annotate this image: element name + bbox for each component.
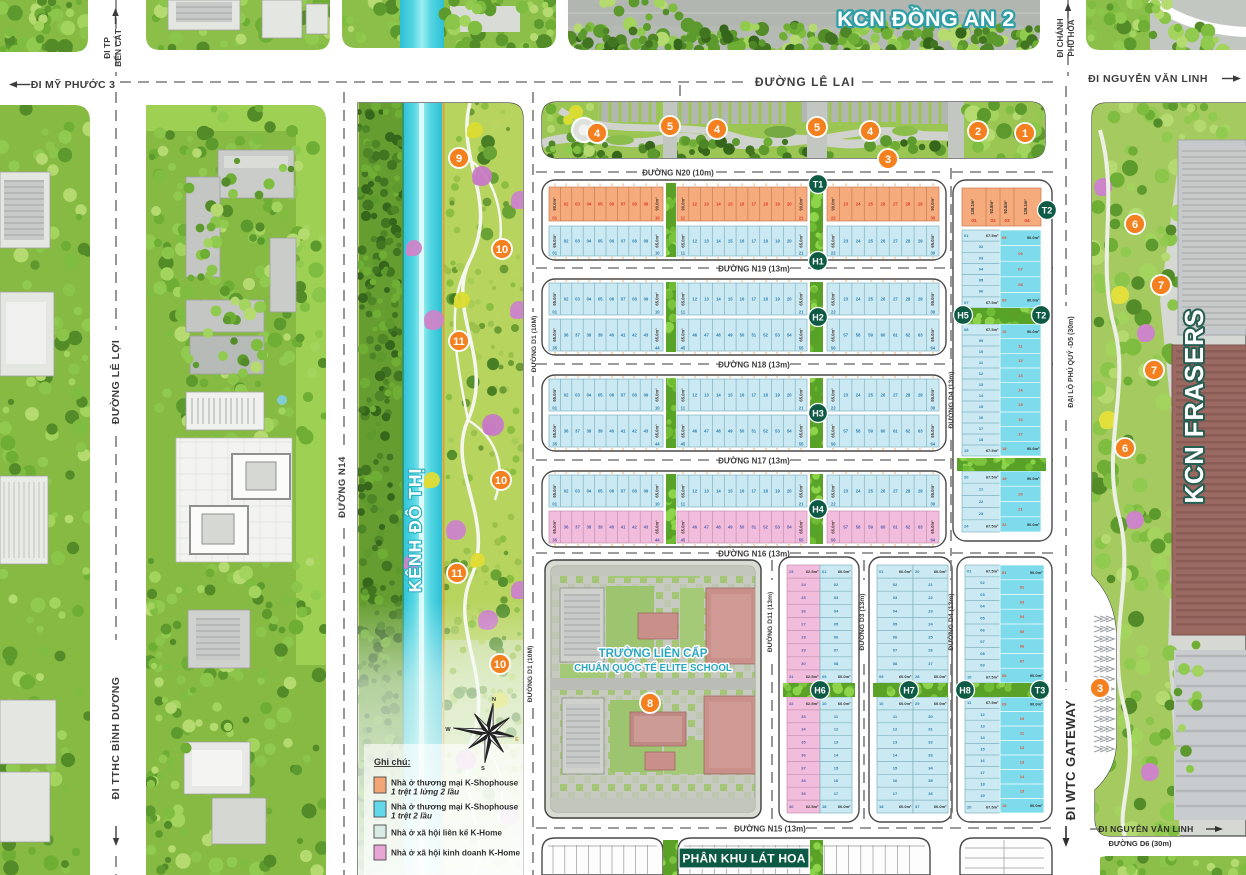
svg-text:90.0m²: 90.0m² — [1027, 329, 1040, 334]
svg-text:5: 5 — [765, 544, 767, 548]
svg-text:25: 25 — [868, 393, 873, 398]
svg-text:12: 12 — [692, 297, 697, 302]
svg-text:61: 61 — [893, 333, 898, 338]
svg-text:90.0m²: 90.0m² — [1030, 673, 1043, 678]
svg-text:2: 2 — [975, 126, 981, 138]
svg-text:5: 5 — [894, 257, 896, 261]
svg-text:5: 5 — [588, 257, 590, 261]
svg-text:09: 09 — [644, 239, 649, 244]
svg-text:5: 5 — [932, 471, 934, 475]
svg-text:ĐI CHÁNH: ĐI CHÁNH — [1056, 18, 1065, 57]
svg-text:39: 39 — [598, 429, 603, 434]
svg-text:58: 58 — [856, 429, 861, 434]
svg-text:07: 07 — [621, 297, 626, 302]
svg-text:03: 03 — [575, 239, 580, 244]
svg-text:48: 48 — [716, 333, 721, 338]
svg-text:12: 12 — [692, 393, 697, 398]
svg-text:5: 5 — [717, 471, 719, 475]
svg-text:62.5m²: 62.5m² — [806, 569, 819, 574]
svg-text:53: 53 — [775, 525, 780, 530]
svg-text:07: 07 — [834, 648, 839, 653]
svg-text:5: 5 — [800, 448, 802, 452]
svg-text:9: 9 — [456, 153, 462, 165]
svg-text:65.0m²: 65.0m² — [799, 292, 804, 306]
svg-text:5: 5 — [776, 257, 778, 261]
svg-text:04: 04 — [1024, 218, 1030, 224]
svg-text:06: 06 — [1020, 644, 1025, 649]
svg-text:5: 5 — [633, 544, 635, 548]
svg-text:60.0m²: 60.0m² — [934, 804, 947, 809]
svg-text:5: 5 — [814, 122, 820, 134]
svg-text:5: 5 — [832, 257, 834, 261]
svg-text:5: 5 — [894, 448, 896, 452]
svg-text:65.0m²: 65.0m² — [930, 484, 935, 498]
svg-text:5: 5 — [729, 448, 731, 452]
svg-text:5: 5 — [611, 279, 613, 283]
svg-text:5: 5 — [857, 448, 859, 452]
svg-text:18: 18 — [1002, 446, 1007, 451]
svg-text:5: 5 — [656, 183, 658, 187]
svg-text:17: 17 — [979, 426, 984, 431]
svg-text:12: 12 — [893, 727, 898, 732]
svg-text:65.0m²: 65.0m² — [799, 424, 804, 438]
svg-text:5: 5 — [611, 544, 613, 548]
svg-text:92.8m²: 92.8m² — [989, 200, 994, 214]
svg-text:5: 5 — [870, 279, 872, 283]
svg-text:5: 5 — [845, 471, 847, 475]
svg-text:5: 5 — [682, 257, 684, 261]
svg-text:03: 03 — [575, 489, 580, 494]
svg-text:45: 45 — [681, 346, 686, 351]
svg-text:10: 10 — [822, 701, 827, 706]
svg-text:65.0m²: 65.0m² — [831, 328, 836, 342]
svg-text:5: 5 — [765, 257, 767, 261]
svg-text:20: 20 — [967, 805, 972, 810]
svg-text:09: 09 — [644, 202, 649, 207]
svg-text:65.0m²: 65.0m² — [655, 234, 660, 248]
svg-text:5: 5 — [907, 471, 909, 475]
svg-text:22: 22 — [831, 216, 836, 221]
svg-text:33: 33 — [801, 714, 806, 719]
svg-text:H6: H6 — [814, 686, 826, 696]
svg-text:46: 46 — [692, 333, 697, 338]
svg-text:10: 10 — [1002, 329, 1007, 334]
svg-text:38: 38 — [587, 333, 592, 338]
svg-text:5: 5 — [932, 183, 934, 187]
svg-text:S: S — [481, 766, 485, 772]
svg-text:5: 5 — [682, 183, 684, 187]
svg-text:67.5m²: 67.5m² — [986, 448, 999, 453]
svg-text:34: 34 — [801, 727, 806, 732]
svg-text:60.0m²: 60.0m² — [899, 804, 912, 809]
svg-text:5: 5 — [765, 448, 767, 452]
svg-text:02: 02 — [893, 582, 898, 587]
svg-text:29: 29 — [915, 701, 920, 706]
svg-text:10: 10 — [967, 675, 972, 680]
svg-text:67.5m²: 67.5m² — [986, 805, 999, 810]
svg-text:24: 24 — [856, 489, 861, 494]
svg-text:24: 24 — [928, 621, 933, 626]
svg-text:27: 27 — [928, 661, 933, 666]
svg-text:5: 5 — [588, 375, 590, 379]
svg-text:32: 32 — [928, 740, 933, 745]
svg-text:01: 01 — [1002, 570, 1007, 575]
svg-text:ĐƯỜNG N15 (13m): ĐƯỜNG N15 (13m) — [734, 825, 806, 834]
svg-text:5: 5 — [611, 183, 613, 187]
svg-text:50: 50 — [740, 333, 745, 338]
svg-text:5: 5 — [706, 257, 708, 261]
svg-text:5: 5 — [907, 448, 909, 452]
svg-text:65.0m²: 65.0m² — [680, 328, 685, 342]
svg-text:5: 5 — [776, 471, 778, 475]
svg-text:15: 15 — [728, 489, 733, 494]
svg-text:17: 17 — [751, 297, 756, 302]
svg-text:47: 47 — [704, 525, 709, 530]
svg-text:5: 5 — [645, 183, 647, 187]
svg-text:02: 02 — [564, 239, 569, 244]
svg-text:4: 4 — [594, 128, 601, 140]
svg-text:54: 54 — [787, 429, 792, 434]
svg-text:64: 64 — [930, 538, 935, 543]
svg-text:12: 12 — [834, 727, 839, 732]
svg-text:ĐƯỜNG D1 (10M): ĐƯỜNG D1 (10M) — [525, 646, 534, 703]
svg-text:5: 5 — [741, 352, 743, 356]
svg-text:5: 5 — [694, 448, 696, 452]
svg-text:ĐI NGUYỄN VĂN LINH: ĐI NGUYỄN VĂN LINH — [1098, 823, 1193, 834]
svg-text:25: 25 — [868, 489, 873, 494]
svg-text:40: 40 — [609, 333, 614, 338]
svg-text:Ghi chú:: Ghi chú: — [374, 757, 411, 767]
svg-text:27: 27 — [801, 621, 806, 626]
svg-text:03: 03 — [1020, 599, 1025, 604]
svg-text:5: 5 — [682, 471, 684, 475]
svg-text:40: 40 — [789, 804, 794, 809]
svg-text:5: 5 — [588, 448, 590, 452]
svg-text:67.5m²: 67.5m² — [986, 327, 999, 332]
svg-text:4: 4 — [714, 124, 721, 136]
svg-text:38: 38 — [587, 525, 592, 530]
svg-text:07: 07 — [980, 639, 985, 644]
svg-text:5: 5 — [611, 471, 613, 475]
svg-text:33: 33 — [928, 752, 933, 757]
svg-text:13: 13 — [704, 202, 709, 207]
svg-text:10: 10 — [494, 659, 506, 671]
svg-text:60.0m²: 60.0m² — [899, 569, 912, 574]
svg-text:27: 27 — [893, 202, 898, 207]
svg-text:18: 18 — [763, 393, 768, 398]
svg-text:5: 5 — [611, 448, 613, 452]
svg-text:03: 03 — [1004, 218, 1010, 224]
svg-text:ĐƯỜNG D11 (13m): ĐƯỜNG D11 (13m) — [765, 592, 774, 653]
svg-text:31: 31 — [789, 674, 794, 679]
svg-text:5: 5 — [857, 183, 859, 187]
svg-text:5: 5 — [870, 352, 872, 356]
svg-text:5: 5 — [588, 279, 590, 283]
svg-text:5: 5 — [565, 257, 567, 261]
svg-text:39: 39 — [598, 525, 603, 530]
svg-text:65.0m²: 65.0m² — [930, 328, 935, 342]
svg-text:56: 56 — [831, 346, 836, 351]
svg-text:60.0m²: 60.0m² — [838, 701, 851, 706]
svg-text:18: 18 — [879, 804, 884, 809]
svg-text:50: 50 — [740, 429, 745, 434]
svg-text:52: 52 — [763, 525, 768, 530]
svg-text:E: E — [515, 737, 519, 743]
svg-text:ĐƯỜNG LÊ LỢI: ĐƯỜNG LÊ LỢI — [109, 340, 122, 425]
svg-text:65.0m²: 65.0m² — [831, 424, 836, 438]
svg-text:H3: H3 — [812, 409, 824, 419]
svg-text:26: 26 — [881, 489, 886, 494]
svg-text:49: 49 — [728, 333, 733, 338]
svg-text:7: 7 — [1158, 280, 1164, 292]
svg-text:01: 01 — [552, 502, 557, 507]
svg-text:25: 25 — [868, 202, 873, 207]
svg-text:5: 5 — [741, 471, 743, 475]
svg-text:H2: H2 — [812, 313, 824, 323]
svg-text:5: 5 — [622, 257, 624, 261]
svg-text:65.0m²: 65.0m² — [930, 292, 935, 306]
svg-text:12: 12 — [692, 239, 697, 244]
svg-text:16: 16 — [740, 297, 745, 302]
svg-text:14: 14 — [893, 752, 898, 757]
svg-text:49: 49 — [728, 429, 733, 434]
svg-text:5: 5 — [832, 544, 834, 548]
svg-text:09: 09 — [644, 489, 649, 494]
svg-text:06: 06 — [1018, 251, 1023, 256]
svg-text:5: 5 — [857, 257, 859, 261]
svg-text:5: 5 — [788, 448, 790, 452]
svg-text:5: 5 — [894, 279, 896, 283]
svg-text:67.5m²: 67.5m² — [986, 568, 999, 573]
svg-text:10: 10 — [655, 216, 660, 221]
svg-text:57: 57 — [843, 333, 848, 338]
svg-text:ĐI TTHC BÌNH DƯƠNG: ĐI TTHC BÌNH DƯƠNG — [109, 677, 122, 800]
svg-text:ĐƯỜNG D6 (30m): ĐƯỜNG D6 (30m) — [1108, 839, 1172, 848]
svg-text:60.0m²: 60.0m² — [838, 674, 851, 679]
svg-text:T1: T1 — [813, 180, 824, 190]
svg-text:5: 5 — [882, 257, 884, 261]
svg-text:25: 25 — [868, 297, 873, 302]
svg-text:5: 5 — [882, 544, 884, 548]
svg-text:02: 02 — [834, 582, 839, 587]
svg-text:16: 16 — [740, 202, 745, 207]
svg-text:67.5m²: 67.5m² — [986, 233, 999, 238]
svg-text:16: 16 — [740, 489, 745, 494]
svg-text:17: 17 — [751, 489, 756, 494]
svg-text:5: 5 — [845, 183, 847, 187]
svg-text:43: 43 — [644, 429, 649, 434]
svg-text:02: 02 — [980, 580, 985, 585]
svg-text:17: 17 — [893, 791, 898, 796]
svg-text:62.5m²: 62.5m² — [806, 674, 819, 679]
svg-text:53: 53 — [775, 333, 780, 338]
svg-text:5: 5 — [599, 448, 601, 452]
svg-text:29: 29 — [918, 202, 923, 207]
svg-text:90.0m²: 90.0m² — [1027, 446, 1040, 451]
svg-text:30: 30 — [930, 502, 935, 507]
svg-text:04: 04 — [587, 239, 592, 244]
svg-text:ĐƯỜNG D4 (13m): ĐƯỜNG D4 (13m) — [946, 593, 955, 650]
svg-text:5: 5 — [565, 544, 567, 548]
svg-text:5: 5 — [870, 544, 872, 548]
svg-text:35: 35 — [801, 740, 806, 745]
svg-text:65.0m²: 65.0m² — [831, 484, 836, 498]
svg-text:26: 26 — [801, 608, 806, 613]
svg-text:17: 17 — [1018, 431, 1023, 436]
svg-text:65.0m²: 65.0m² — [552, 234, 557, 248]
svg-text:05: 05 — [598, 393, 603, 398]
svg-text:5: 5 — [882, 183, 884, 187]
svg-text:01: 01 — [552, 310, 557, 315]
svg-text:07: 07 — [1018, 266, 1023, 271]
svg-text:13: 13 — [1018, 373, 1023, 378]
svg-text:5: 5 — [845, 448, 847, 452]
svg-text:5: 5 — [832, 352, 834, 356]
svg-text:03: 03 — [575, 202, 580, 207]
svg-text:11: 11 — [453, 336, 465, 348]
svg-text:5: 5 — [633, 183, 635, 187]
svg-text:5: 5 — [554, 352, 556, 356]
svg-text:5: 5 — [694, 279, 696, 283]
svg-text:5: 5 — [682, 279, 684, 283]
svg-text:19: 19 — [1002, 476, 1007, 481]
svg-text:5: 5 — [845, 375, 847, 379]
svg-text:44: 44 — [655, 442, 660, 447]
svg-text:PHÂN KHU LÁT HOA: PHÂN KHU LÁT HOA — [682, 851, 805, 866]
svg-text:39: 39 — [801, 791, 806, 796]
svg-text:26: 26 — [881, 297, 886, 302]
svg-text:5: 5 — [800, 183, 802, 187]
svg-text:5: 5 — [645, 375, 647, 379]
svg-text:07: 07 — [621, 489, 626, 494]
svg-text:5: 5 — [788, 279, 790, 283]
svg-text:5: 5 — [870, 375, 872, 379]
svg-text:41: 41 — [621, 333, 626, 338]
svg-text:27: 27 — [893, 297, 898, 302]
svg-text:16: 16 — [1018, 417, 1023, 422]
svg-text:26: 26 — [881, 393, 886, 398]
svg-text:65.0m²: 65.0m² — [655, 328, 660, 342]
svg-text:ĐƯỜNG N20 (10m): ĐƯỜNG N20 (10m) — [642, 169, 714, 178]
svg-text:05: 05 — [598, 297, 603, 302]
svg-text:18: 18 — [763, 297, 768, 302]
svg-text:5: 5 — [741, 183, 743, 187]
svg-text:65.0m²: 65.0m² — [655, 388, 660, 402]
svg-text:5: 5 — [741, 257, 743, 261]
svg-text:60.0m²: 60.0m² — [934, 701, 947, 706]
svg-text:5: 5 — [882, 352, 884, 356]
svg-text:5: 5 — [717, 448, 719, 452]
svg-text:21: 21 — [799, 502, 804, 507]
svg-text:5: 5 — [599, 279, 601, 283]
svg-text:5: 5 — [800, 544, 802, 548]
svg-text:5: 5 — [765, 375, 767, 379]
svg-text:20: 20 — [1018, 491, 1023, 496]
svg-text:32: 32 — [789, 701, 794, 706]
svg-text:20: 20 — [787, 297, 792, 302]
svg-text:5: 5 — [588, 471, 590, 475]
svg-text:12: 12 — [980, 712, 985, 717]
svg-text:23: 23 — [979, 511, 984, 516]
svg-text:65.0m²: 65.0m² — [680, 292, 685, 306]
svg-text:16: 16 — [979, 415, 984, 420]
svg-text:5: 5 — [753, 471, 755, 475]
svg-text:5: 5 — [845, 544, 847, 548]
svg-text:21: 21 — [799, 310, 804, 315]
svg-text:5: 5 — [932, 375, 934, 379]
svg-text:5: 5 — [894, 183, 896, 187]
svg-text:5: 5 — [633, 352, 635, 356]
svg-text:6: 6 — [1132, 219, 1138, 231]
svg-text:60.0m²: 60.0m² — [934, 674, 947, 679]
svg-text:30: 30 — [928, 714, 933, 719]
svg-text:13: 13 — [834, 740, 839, 745]
svg-text:5: 5 — [857, 471, 859, 475]
svg-text:5: 5 — [717, 544, 719, 548]
svg-text:5: 5 — [645, 544, 647, 548]
svg-text:29: 29 — [918, 489, 923, 494]
svg-text:30: 30 — [930, 406, 935, 411]
svg-text:3: 3 — [885, 154, 891, 166]
svg-text:5: 5 — [788, 257, 790, 261]
svg-text:ĐI MỸ PHƯỚC 3: ĐI MỸ PHƯỚC 3 — [31, 78, 116, 91]
svg-text:10: 10 — [979, 349, 984, 354]
svg-text:5: 5 — [682, 375, 684, 379]
svg-text:5: 5 — [694, 544, 696, 548]
svg-text:18: 18 — [763, 239, 768, 244]
svg-text:49: 49 — [728, 525, 733, 530]
svg-text:5: 5 — [907, 183, 909, 187]
svg-text:5: 5 — [633, 448, 635, 452]
svg-text:5: 5 — [656, 448, 658, 452]
svg-text:64: 64 — [930, 442, 935, 447]
svg-text:5: 5 — [870, 257, 872, 261]
svg-text:03: 03 — [575, 297, 580, 302]
svg-text:17: 17 — [751, 393, 756, 398]
svg-text:19: 19 — [775, 202, 780, 207]
svg-text:5: 5 — [717, 257, 719, 261]
svg-text:5: 5 — [599, 471, 601, 475]
svg-text:20: 20 — [787, 393, 792, 398]
svg-text:03: 03 — [979, 255, 984, 260]
svg-text:5: 5 — [706, 375, 708, 379]
svg-text:H8: H8 — [959, 686, 971, 696]
svg-text:11: 11 — [451, 568, 463, 580]
svg-text:25: 25 — [928, 635, 933, 640]
svg-text:29: 29 — [918, 297, 923, 302]
svg-text:04: 04 — [587, 297, 592, 302]
svg-text:5: 5 — [729, 279, 731, 283]
svg-text:08: 08 — [1002, 673, 1007, 678]
svg-text:01: 01 — [822, 569, 827, 574]
svg-text:26: 26 — [881, 239, 886, 244]
svg-text:5: 5 — [832, 279, 834, 283]
svg-text:5: 5 — [832, 183, 834, 187]
svg-text:N: N — [492, 697, 496, 703]
svg-text:09: 09 — [1002, 702, 1007, 707]
svg-text:58: 58 — [856, 333, 861, 338]
svg-text:5: 5 — [656, 257, 658, 261]
svg-text:W: W — [445, 727, 451, 733]
svg-text:08: 08 — [893, 661, 898, 666]
svg-text:01: 01 — [552, 251, 557, 256]
svg-text:22: 22 — [831, 502, 836, 507]
svg-text:12: 12 — [692, 489, 697, 494]
svg-text:47: 47 — [704, 429, 709, 434]
svg-text:06: 06 — [980, 627, 985, 632]
svg-text:5: 5 — [554, 183, 556, 187]
svg-text:61: 61 — [893, 429, 898, 434]
